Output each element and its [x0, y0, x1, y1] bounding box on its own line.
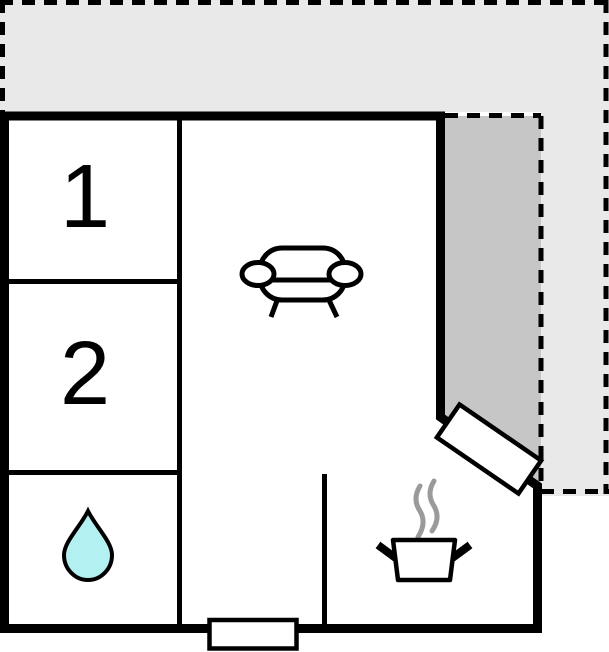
pot-body [393, 540, 455, 580]
floor-plan: 1 2 [0, 0, 609, 652]
floor-plan-canvas: 1 2 [0, 0, 609, 652]
sofa-armrest-right [329, 263, 361, 286]
bedroom-2-label: 2 [60, 324, 110, 424]
sofa-armrest-left [242, 263, 274, 286]
bedroom-1-label: 1 [60, 147, 110, 247]
door-entrance [210, 620, 297, 649]
